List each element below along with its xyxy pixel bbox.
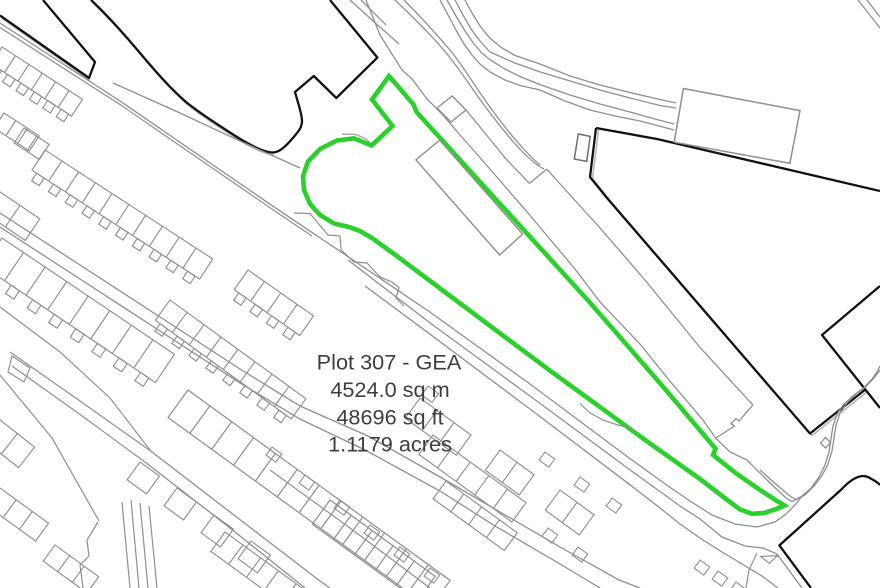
svg-text:48696 sq ft: 48696 sq ft bbox=[336, 404, 443, 429]
svg-text:4524.0 sq m: 4524.0 sq m bbox=[330, 377, 449, 402]
svg-text:Plot 307 - GEA: Plot 307 - GEA bbox=[317, 350, 462, 375]
svg-text:1.1179 acres: 1.1179 acres bbox=[328, 432, 452, 457]
